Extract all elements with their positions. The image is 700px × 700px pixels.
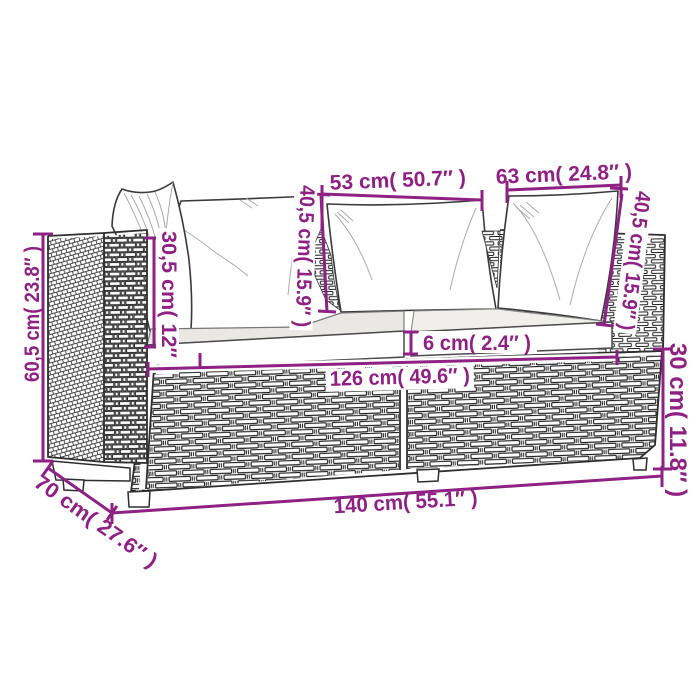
svg-text:126 cm( 49.6″ ): 126 cm( 49.6″ ) (330, 364, 471, 391)
svg-text:60,5 cm( 23.8″ ): 60,5 cm( 23.8″ ) (21, 246, 44, 382)
svg-text:30 cm( 11.8″ ): 30 cm( 11.8″ ) (664, 343, 691, 497)
svg-text:30,5 cm( 12″ ): 30,5 cm( 12″ ) (157, 231, 180, 371)
svg-text:6 cm( 2.4″ ): 6 cm( 2.4″ ) (423, 332, 531, 355)
